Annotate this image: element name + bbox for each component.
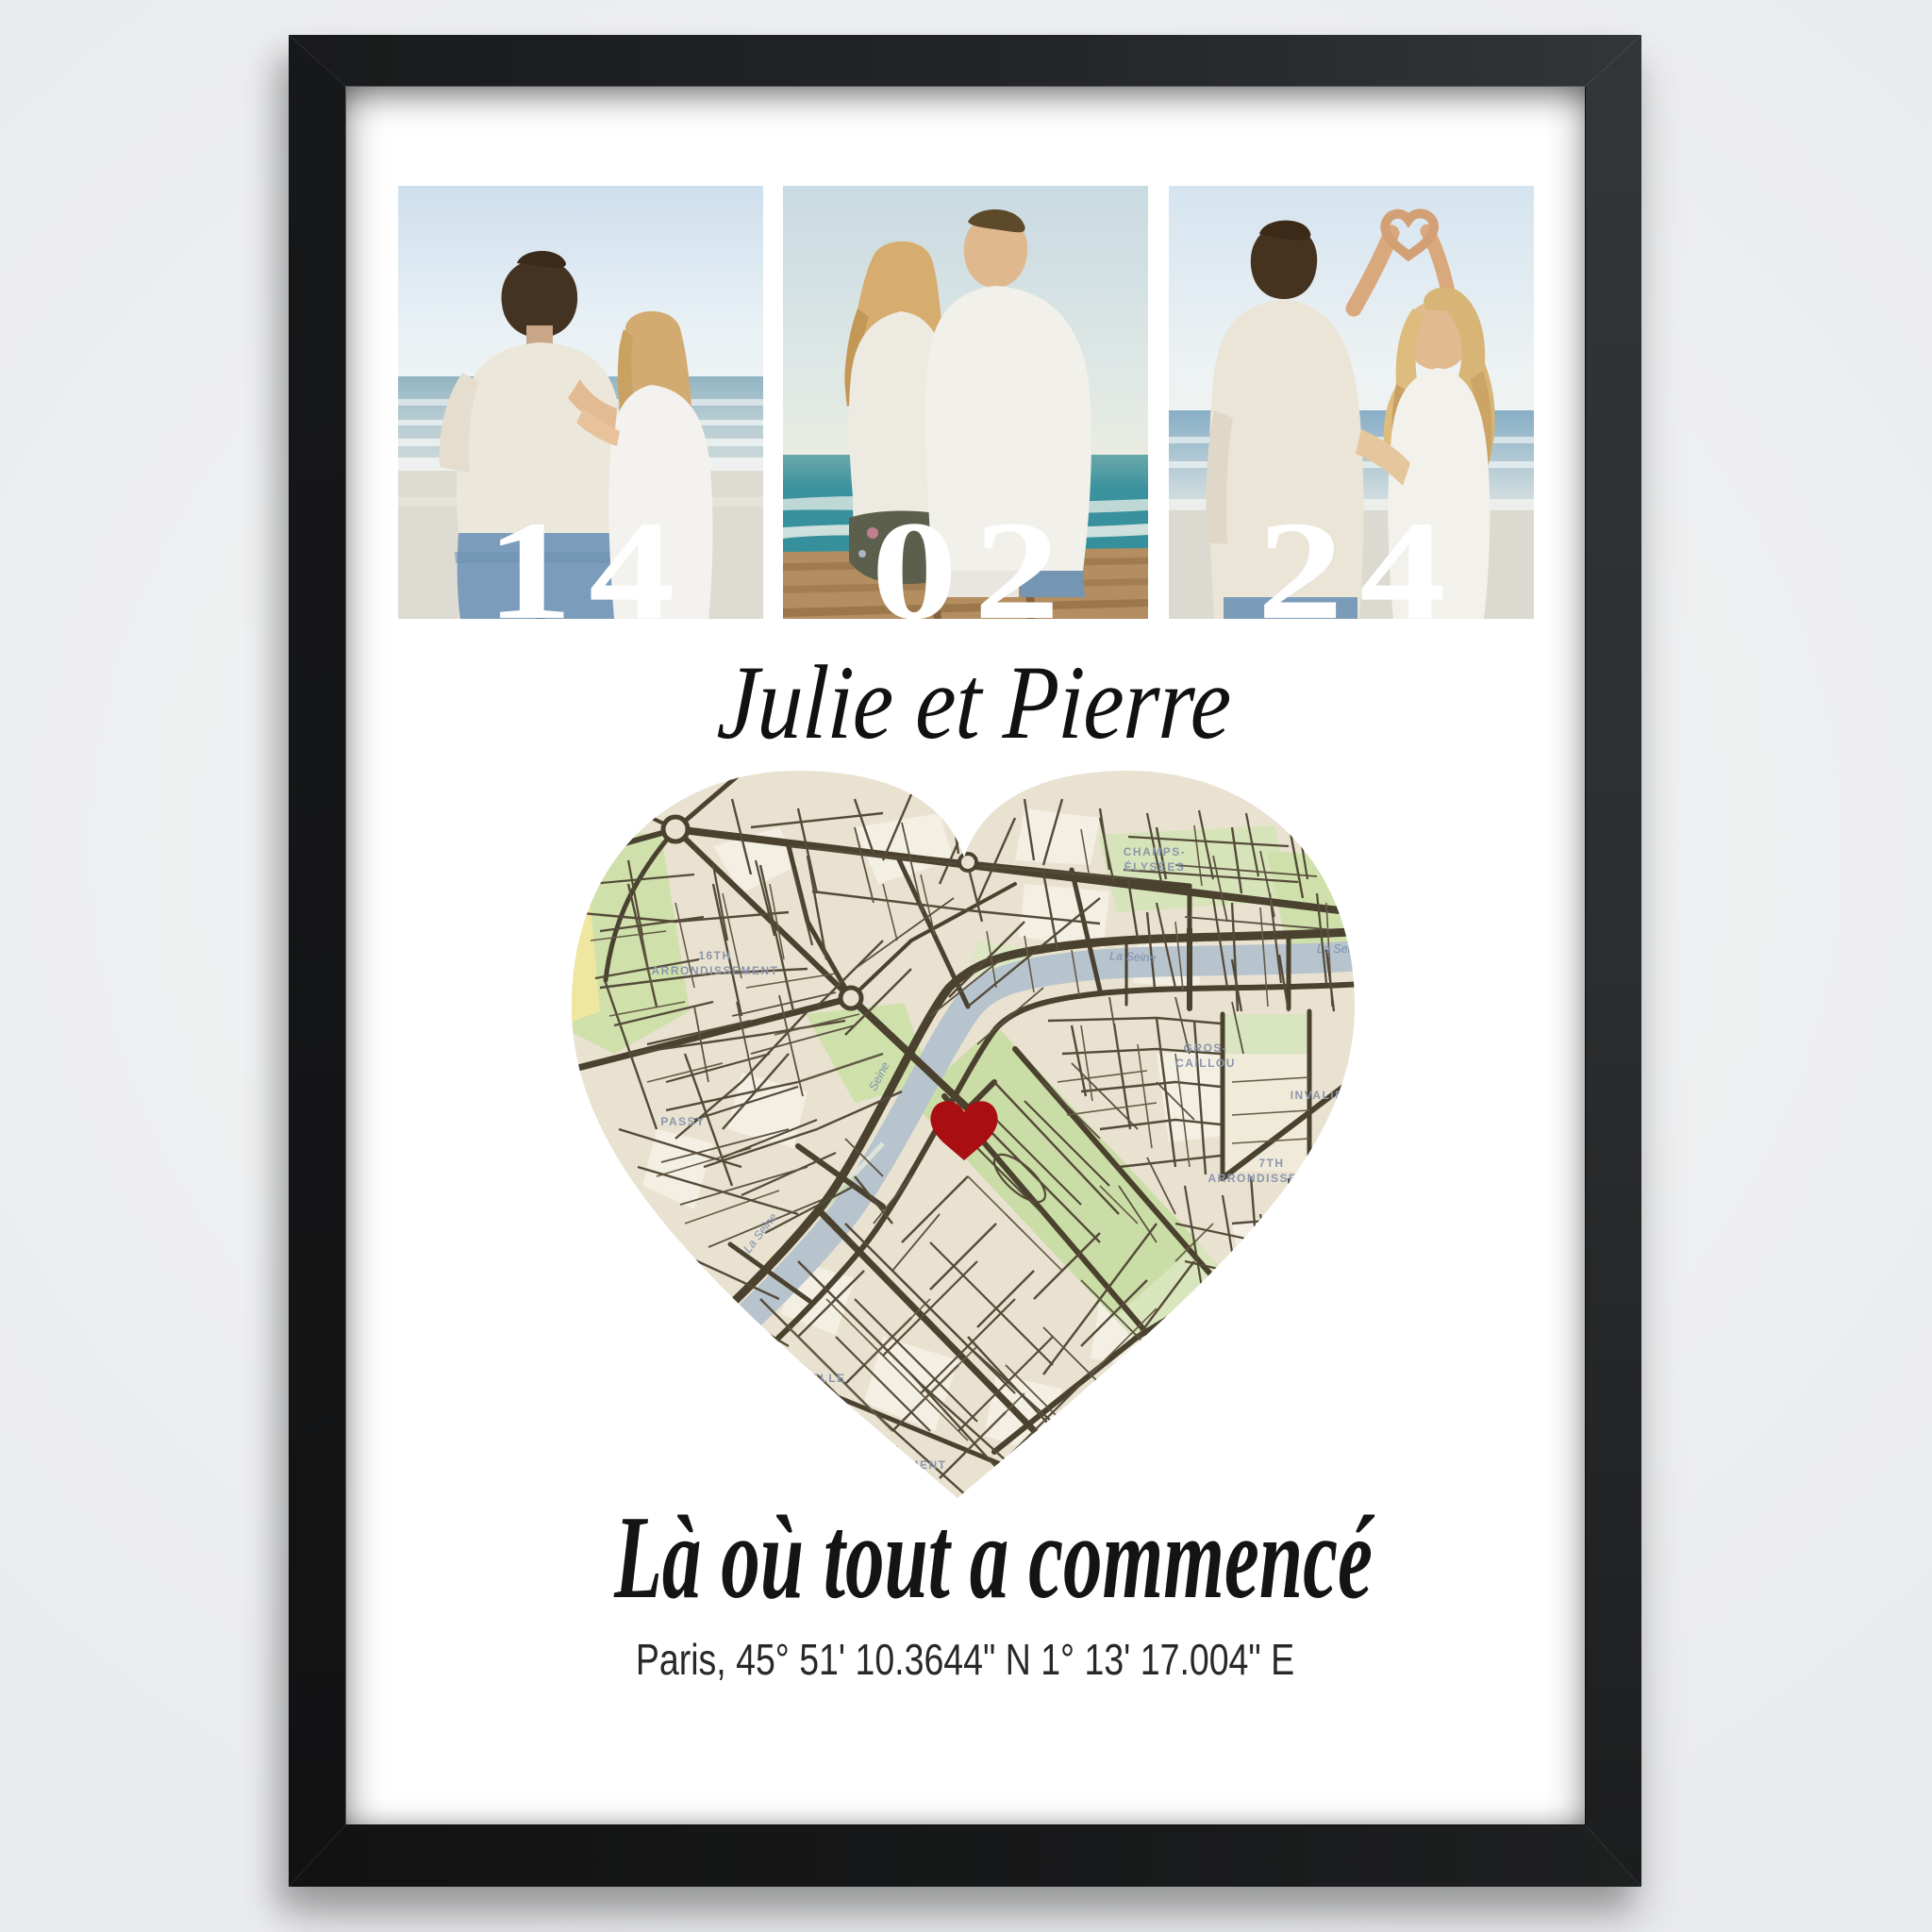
svg-text:La Seine: La Seine [1109, 949, 1157, 965]
svg-text:INVALIDES: INVALIDES [1291, 1089, 1355, 1102]
svg-text:GRENELLE: GRENELLE [773, 1372, 845, 1385]
svg-text:PASSY: PASSY [660, 1115, 705, 1128]
svg-text:15TH: 15TH [866, 1443, 899, 1457]
svg-text:GROS-: GROS- [1184, 1041, 1228, 1055]
svg-text:La Seine: La Seine [1317, 942, 1355, 956]
svg-text:ÉLYSÉES: ÉLYSÉES [1124, 859, 1186, 874]
svg-text:CHAMPS-: CHAMPS- [1124, 845, 1187, 858]
svg-text:ARRONDISSEMENT: ARRONDISSEMENT [651, 964, 778, 977]
svg-text:ARRONDISSEMENT: ARRONDISSEMENT [1207, 1172, 1335, 1185]
svg-text:ARRONDISSEMENT: ARRONDISSEMENT [819, 1458, 946, 1472]
svg-text:CAILLOU: CAILLOU [1175, 1057, 1236, 1070]
svg-text:16TH: 16TH [698, 949, 731, 962]
svg-text:7TH: 7TH [1258, 1157, 1284, 1170]
